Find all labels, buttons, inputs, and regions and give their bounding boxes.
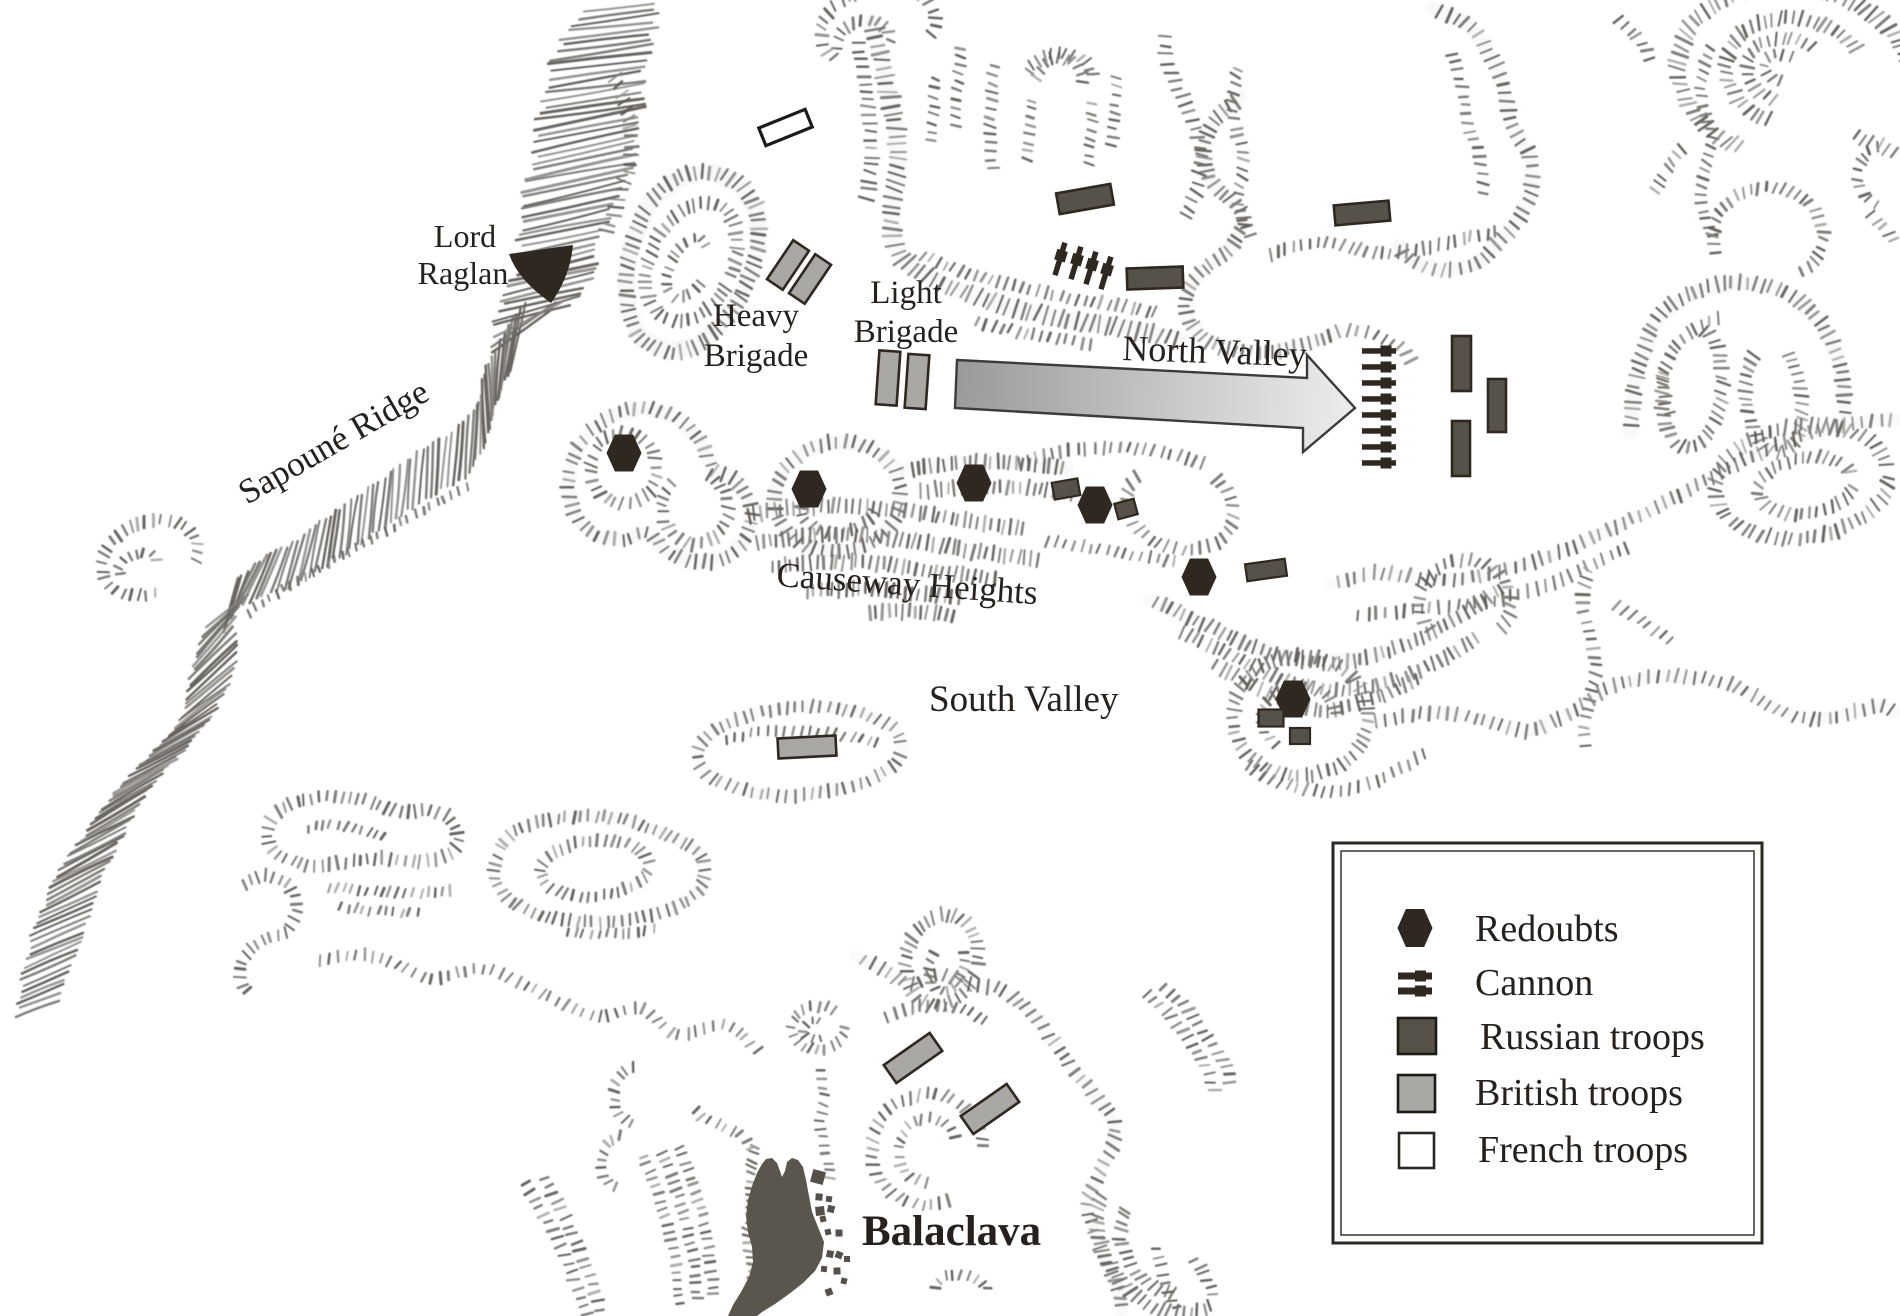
svg-text:Brigade: Brigade <box>854 314 958 350</box>
svg-text:South Valley: South Valley <box>929 679 1119 720</box>
svg-text:Light: Light <box>870 275 942 311</box>
svg-text:Raglan: Raglan <box>418 255 509 291</box>
svg-text:Brigade: Brigade <box>704 338 808 374</box>
svg-text:French troops: French troops <box>1478 1129 1688 1171</box>
svg-text:Lord: Lord <box>434 218 496 254</box>
svg-text:Heavy: Heavy <box>713 298 800 334</box>
svg-text:British troops: British troops <box>1475 1072 1683 1114</box>
svg-text:Redoubts: Redoubts <box>1475 908 1619 950</box>
svg-text:Russian troops: Russian troops <box>1480 1016 1705 1058</box>
svg-text:North Valley: North Valley <box>1122 328 1308 374</box>
svg-text:Cannon: Cannon <box>1475 962 1593 1004</box>
svg-text:Balaclava: Balaclava <box>862 1208 1041 1255</box>
